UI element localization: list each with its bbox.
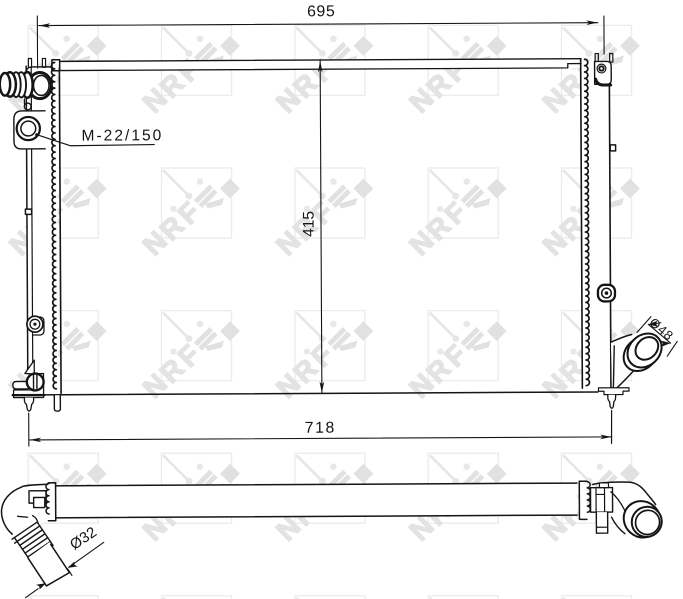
svg-text:415: 415	[301, 211, 318, 237]
svg-text:718: 718	[305, 420, 336, 437]
svg-text:M-22/150: M-22/150	[81, 127, 163, 144]
svg-text:695: 695	[307, 3, 336, 20]
